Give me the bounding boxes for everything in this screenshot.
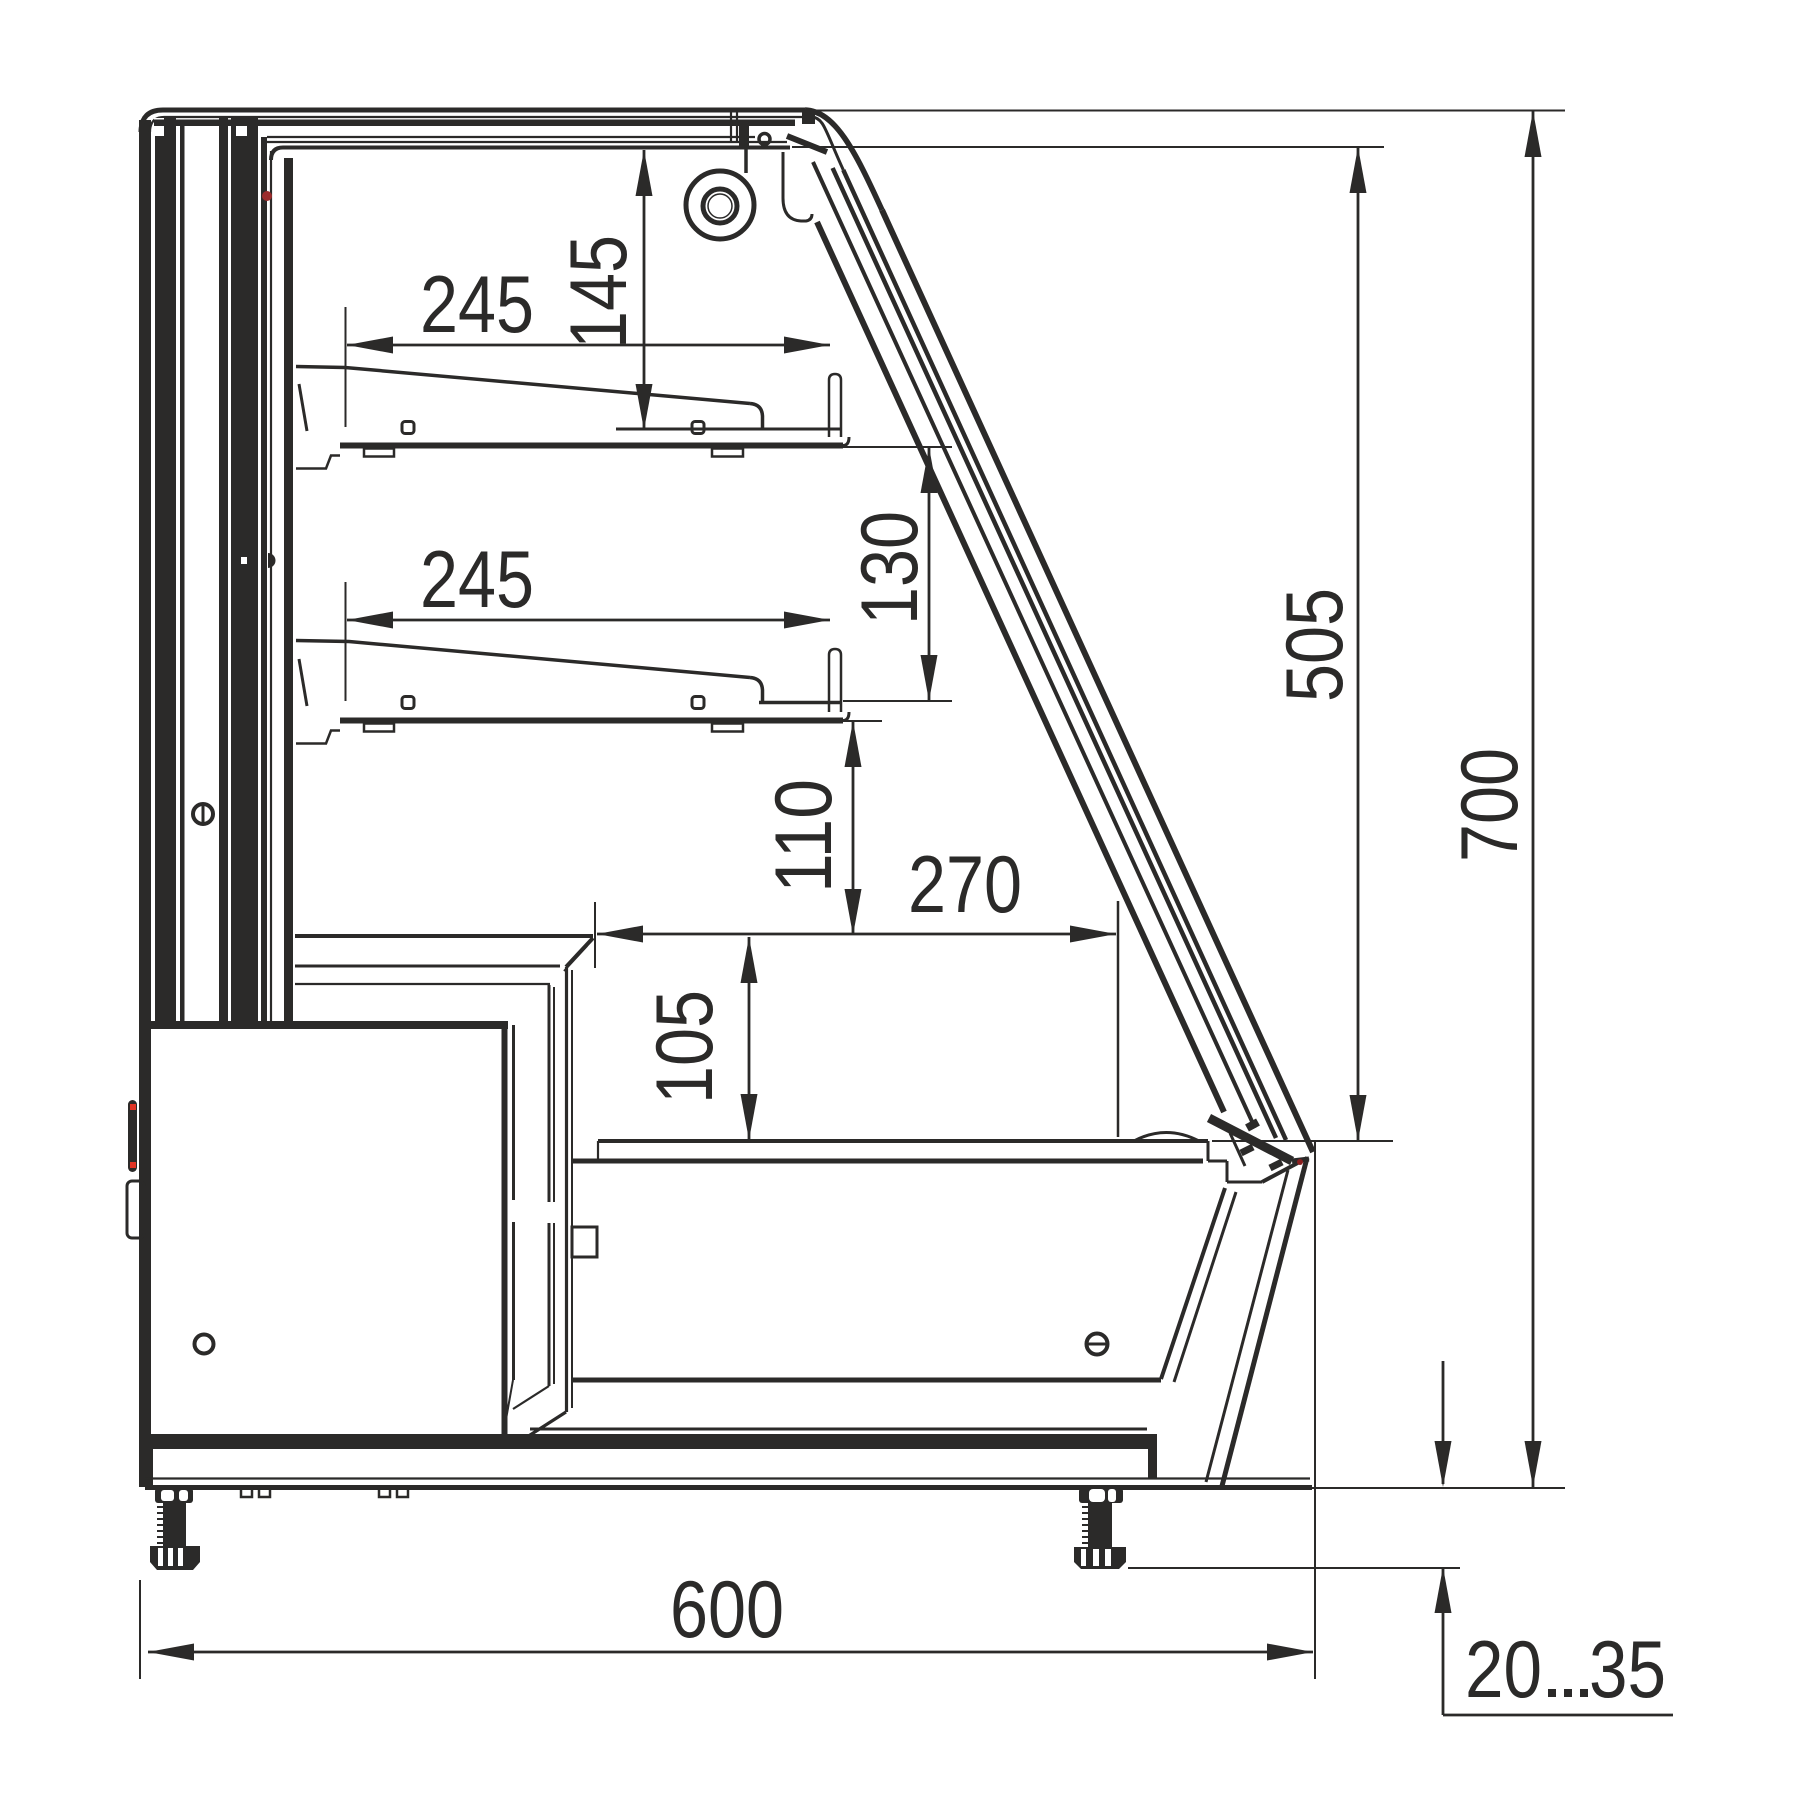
svg-text:110: 110 [759,779,849,893]
svg-text:270: 270 [908,840,1022,930]
svg-text:105: 105 [640,990,730,1104]
svg-text:700: 700 [1445,748,1535,862]
svg-text:35: 35 [1589,1625,1666,1715]
svg-text:130: 130 [845,511,935,625]
svg-text:245: 245 [420,260,534,350]
svg-text:600: 600 [670,1565,784,1655]
svg-text:20: 20 [1465,1625,1542,1715]
svg-text:145: 145 [554,235,644,349]
svg-text:245: 245 [420,535,534,625]
svg-text:505: 505 [1270,588,1360,702]
